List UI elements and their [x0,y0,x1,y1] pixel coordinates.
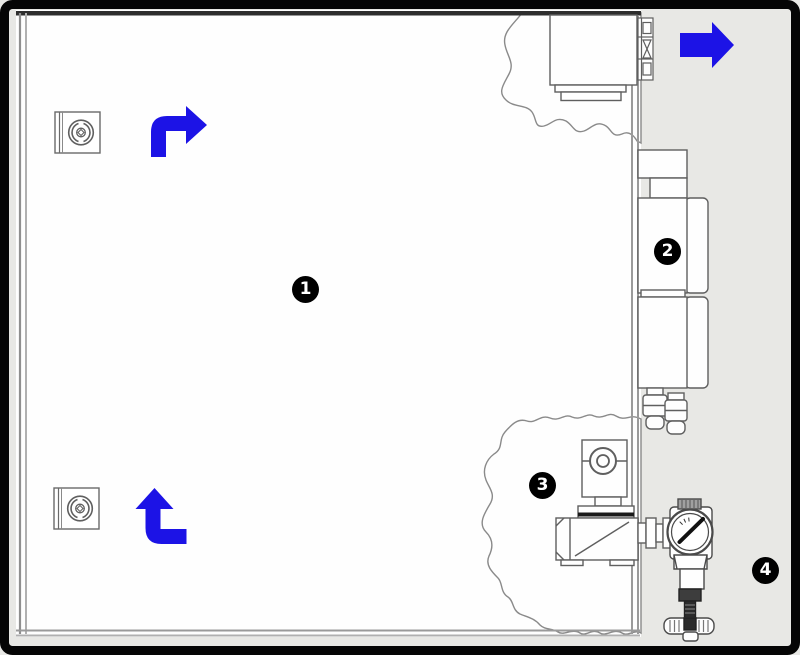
wall-bracket [638,18,653,80]
heater-unit [638,150,708,434]
circulation-fan-top-icon [55,112,100,153]
callout-3: 3 [529,472,556,499]
cable-gland-left [643,388,667,429]
callout-2: 2 [654,238,681,265]
pressure-regulator [664,499,714,641]
callout-1: 1 [292,276,319,303]
adjustment-handwheel [664,618,714,641]
diagram-artwork [0,0,800,655]
pressure-gauge [668,510,713,555]
circulation-fan-bottom-icon [54,488,99,529]
callout-4: 4 [752,557,779,584]
exhaust-unit [550,15,637,101]
exhaust-flow-arrow [680,22,734,68]
diagram-canvas: 1 2 3 4 [0,0,800,655]
cable-gland-right [665,393,687,434]
